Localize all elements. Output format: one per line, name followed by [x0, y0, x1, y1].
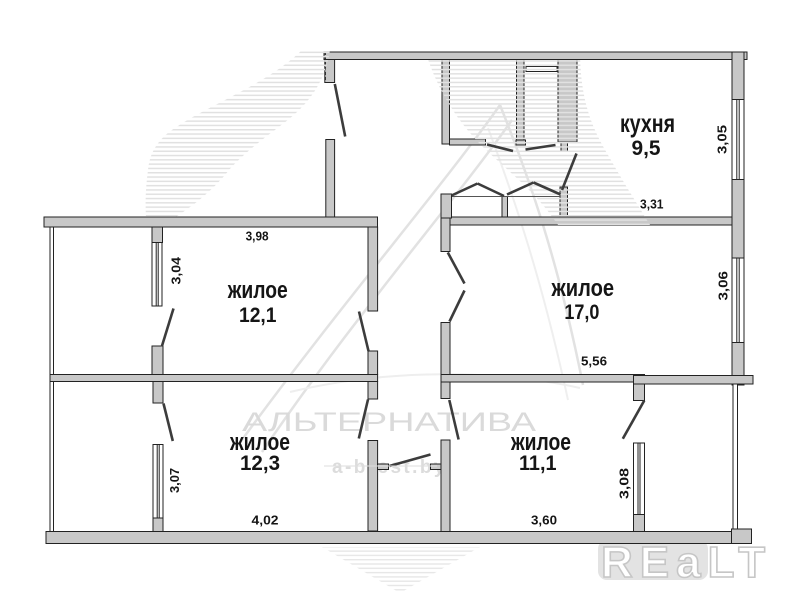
svg-text:12,3: 12,3 [240, 452, 280, 475]
svg-text:17,0: 17,0 [564, 301, 599, 324]
svg-text:12,1: 12,1 [239, 304, 277, 327]
svg-text:3,05: 3,05 [715, 125, 730, 154]
svg-text:5,56: 5,56 [581, 354, 607, 369]
svg-text:REaLT: REaLT [601, 538, 772, 587]
svg-text:3,98: 3,98 [246, 229, 269, 244]
svg-text:11,1: 11,1 [519, 452, 557, 475]
svg-text:3,07: 3,07 [167, 468, 182, 493]
svg-text:3,08: 3,08 [617, 468, 632, 499]
svg-text:3,60: 3,60 [531, 513, 557, 528]
svg-text:кухня: кухня [620, 108, 675, 138]
svg-text:3,04: 3,04 [169, 256, 184, 284]
svg-text:9,5: 9,5 [632, 137, 661, 160]
svg-text:3,06: 3,06 [716, 271, 731, 301]
svg-text:жилое: жилое [227, 277, 288, 304]
svg-text:a-brest.by: a-brest.by [332, 457, 447, 478]
svg-text:4,02: 4,02 [252, 513, 279, 528]
svg-text:жилое: жилое [551, 275, 614, 302]
svg-text:3,31: 3,31 [640, 197, 664, 212]
